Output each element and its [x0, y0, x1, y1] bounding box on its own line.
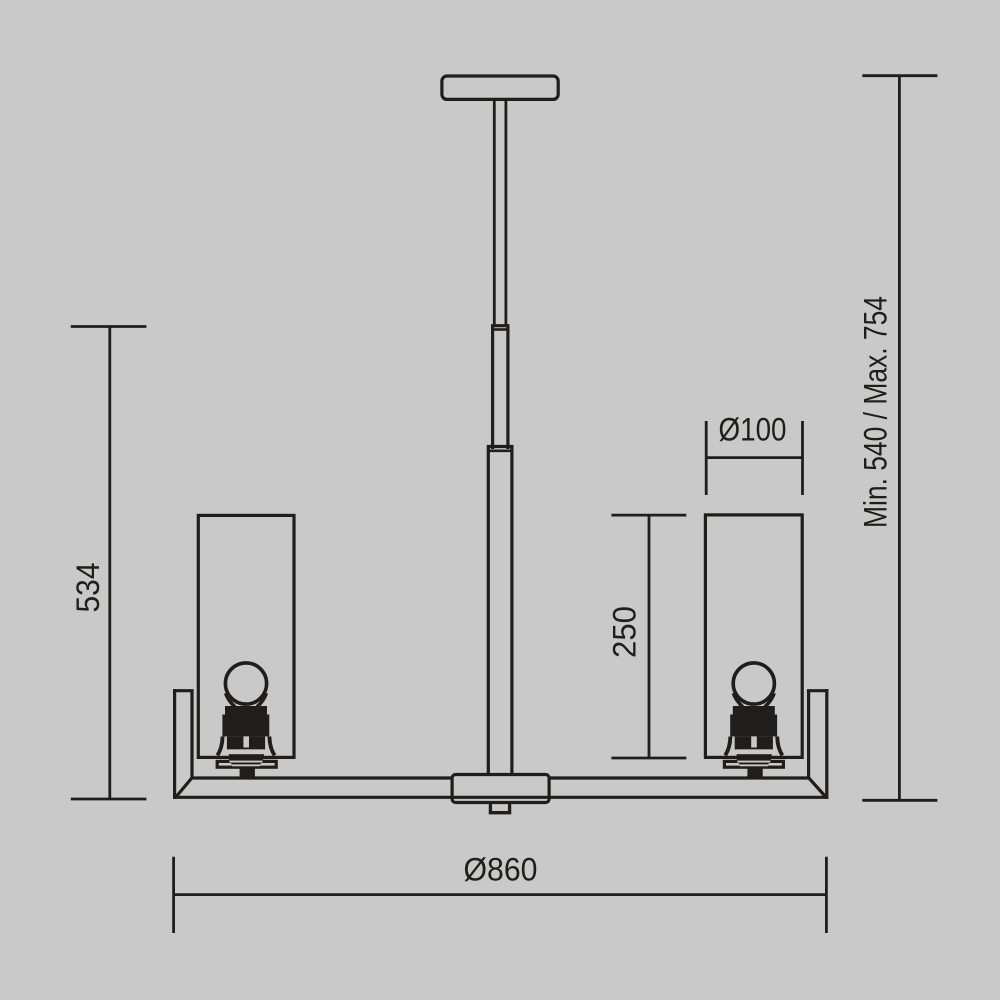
svg-text:Ø860: Ø860 — [464, 852, 538, 888]
svg-text:534: 534 — [70, 563, 106, 613]
svg-text:Min. 540 / Max. 754: Min. 540 / Max. 754 — [858, 296, 894, 528]
svg-text:Ø100: Ø100 — [719, 412, 787, 448]
svg-text:250: 250 — [607, 606, 643, 658]
